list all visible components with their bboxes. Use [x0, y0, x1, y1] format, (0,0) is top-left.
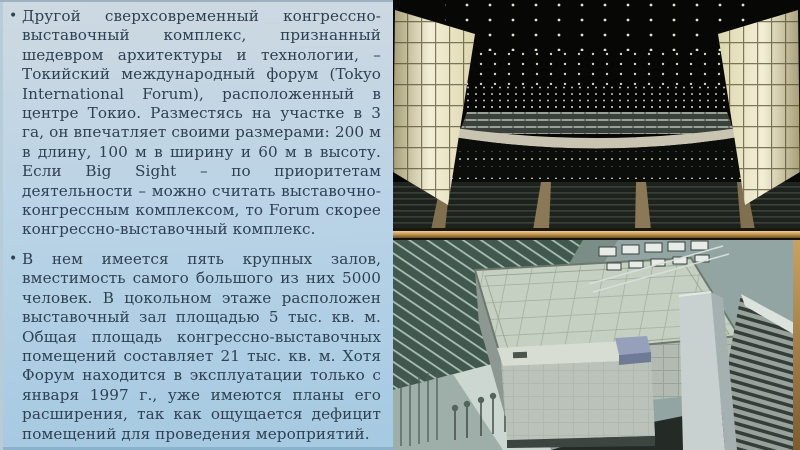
stage-shadow-line: [393, 228, 800, 231]
bullet-item: • Другой сверхсовременный конгрессно-выс…: [9, 7, 381, 240]
aerial-building-illustration: [393, 240, 800, 450]
photo-edge-glare: [793, 240, 800, 450]
paragraph-text: В нем имеется пять крупных залов, вмести…: [22, 250, 381, 444]
paragraph-text: Другой сверхсовременный конгрессно-выста…: [22, 7, 381, 240]
concert-hall-illustration: [393, 0, 800, 238]
photo-building-aerial-view: [393, 240, 800, 450]
photo-column: [393, 0, 800, 450]
rooftop-cube: [615, 336, 651, 365]
photo-concert-hall-interior: [393, 0, 800, 238]
stage-gold-edge: [393, 231, 800, 238]
slide-text-column: • Другой сверхсовременный конгрессно-выс…: [0, 0, 392, 450]
hall-ceiling-lights: [445, 3, 748, 110]
hall-audience-seats: [393, 182, 800, 230]
bullet-item: • В нем имеется пять крупных залов, вмес…: [9, 250, 381, 444]
bullet-marker: •: [9, 250, 22, 444]
hall-balcony: [441, 106, 752, 182]
bullet-marker: •: [9, 7, 22, 240]
presentation-slide: • Другой сверхсовременный конгрессно-выс…: [0, 0, 800, 450]
